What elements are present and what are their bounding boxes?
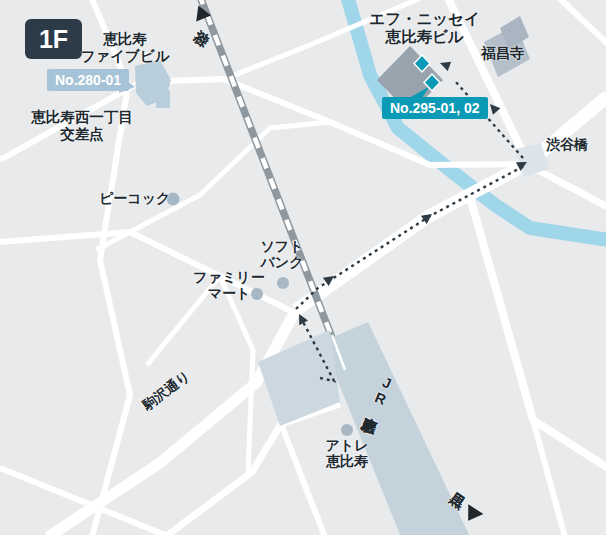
label-line: ファミリー <box>193 269 265 285</box>
floor-badge: 1F <box>25 19 82 59</box>
label-line: バンク <box>251 254 313 270</box>
label-softbank: ソフト バンク <box>251 238 313 270</box>
label-line: ファイブビル <box>75 48 175 65</box>
label-peacock: ピーコック <box>99 190 170 206</box>
label-shibuyabashi: 渋谷橋 <box>546 136 588 152</box>
label-line: ソフト <box>251 238 313 254</box>
label-line: 恵比寿西一丁目 <box>18 109 146 126</box>
atre-dot-icon <box>341 424 353 436</box>
softbank-dot-icon <box>277 277 289 289</box>
label-line: 恵比寿 <box>312 453 382 469</box>
badge-295: No.295-01, 02 <box>382 97 488 119</box>
label-atre-ebisu: アトレ 恵比寿 <box>312 437 382 469</box>
label-line: 恵比寿 <box>75 31 175 48</box>
label-intersection: 恵比寿西一丁目 交差点 <box>18 109 146 142</box>
access-map: 1F 恵比寿 ファイブビル No.280-01 恵比寿西一丁目 交差点 ピーコッ… <box>0 0 606 535</box>
label-line: エフ・ニッセイ <box>352 10 497 28</box>
label-fukushoji: 福昌寺 <box>481 45 525 62</box>
label-familymart: ファミリー マート <box>193 269 265 301</box>
label-f-nissei-building: エフ・ニッセイ 恵比寿ビル <box>352 10 497 46</box>
badge-280: No.280-01 <box>47 69 129 91</box>
label-line: 恵比寿ビル <box>352 28 497 46</box>
label-line: アトレ <box>312 437 382 453</box>
label-line: マート <box>193 285 265 301</box>
label-ebisu-five-building: 恵比寿 ファイブビル <box>75 31 175 64</box>
label-line: 交差点 <box>18 126 146 143</box>
